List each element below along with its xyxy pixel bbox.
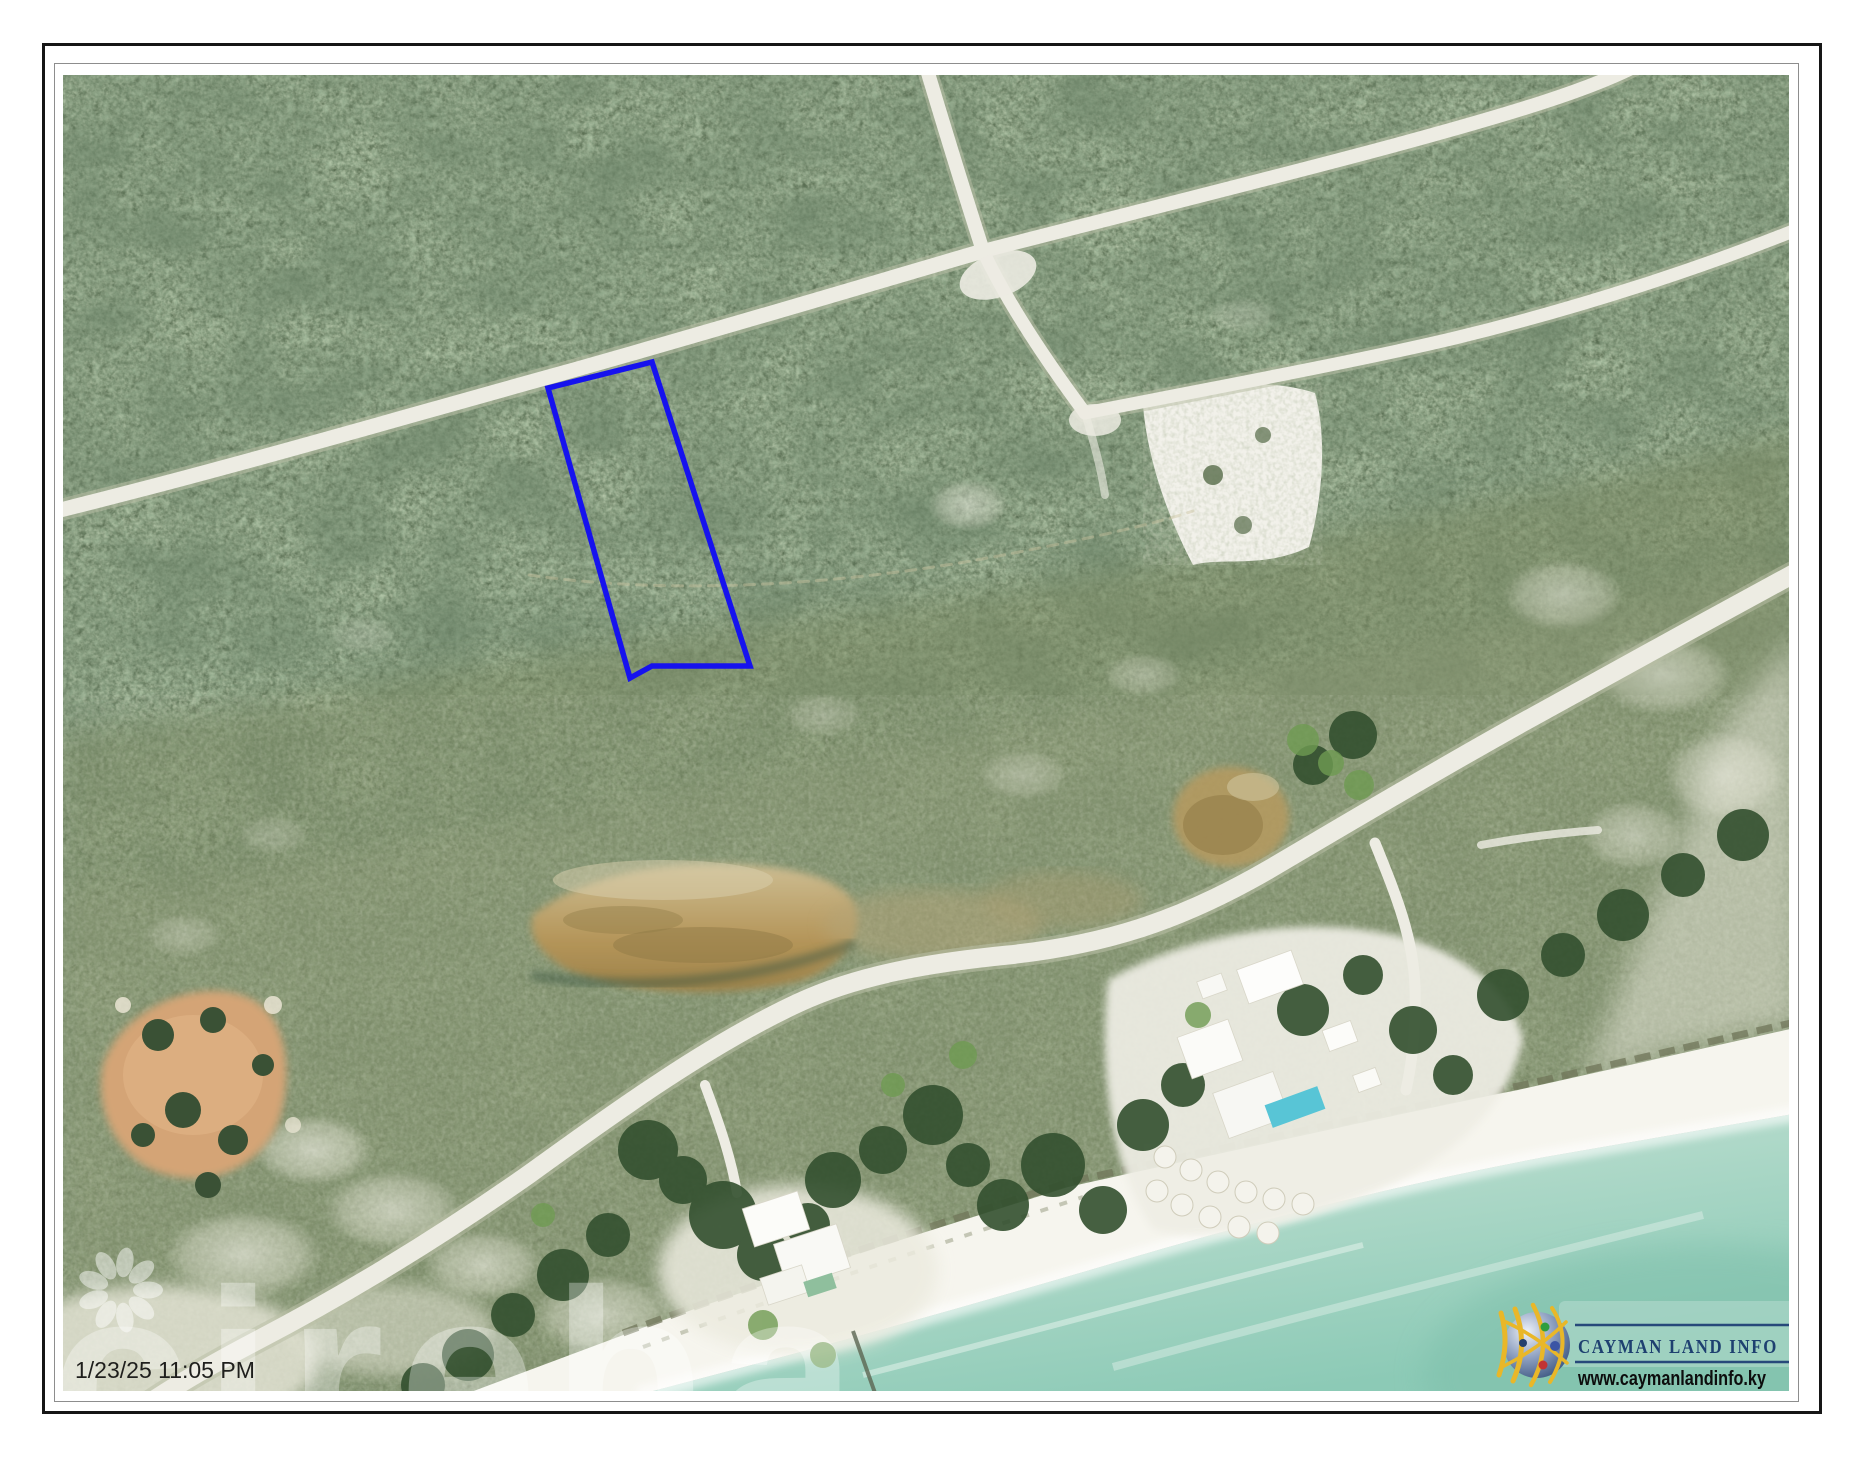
northeast-pond xyxy=(1173,767,1289,867)
globe-dot-green xyxy=(1541,1323,1550,1332)
globe-dot-blue xyxy=(1550,1341,1560,1351)
printed-map-page: cireba 1/23/25 11:05 PM xyxy=(0,0,1860,1458)
globe-dot-red xyxy=(1539,1361,1548,1370)
logo-url: www.caymanlandinfo.ky xyxy=(1577,1368,1767,1390)
aerial-map-canvas: cireba 1/23/25 11:05 PM xyxy=(63,75,1789,1391)
aerial-map: cireba 1/23/25 11:05 PM xyxy=(63,75,1789,1391)
globe-dot-navy xyxy=(1519,1339,1527,1347)
print-timestamp: 1/23/25 11:05 PM xyxy=(75,1357,255,1383)
cayman-land-info-logo: CAYMAN LAND INFO www.caymanlandinfo.ky xyxy=(1499,1301,1789,1390)
logo-title: CAYMAN LAND INFO xyxy=(1578,1336,1778,1358)
